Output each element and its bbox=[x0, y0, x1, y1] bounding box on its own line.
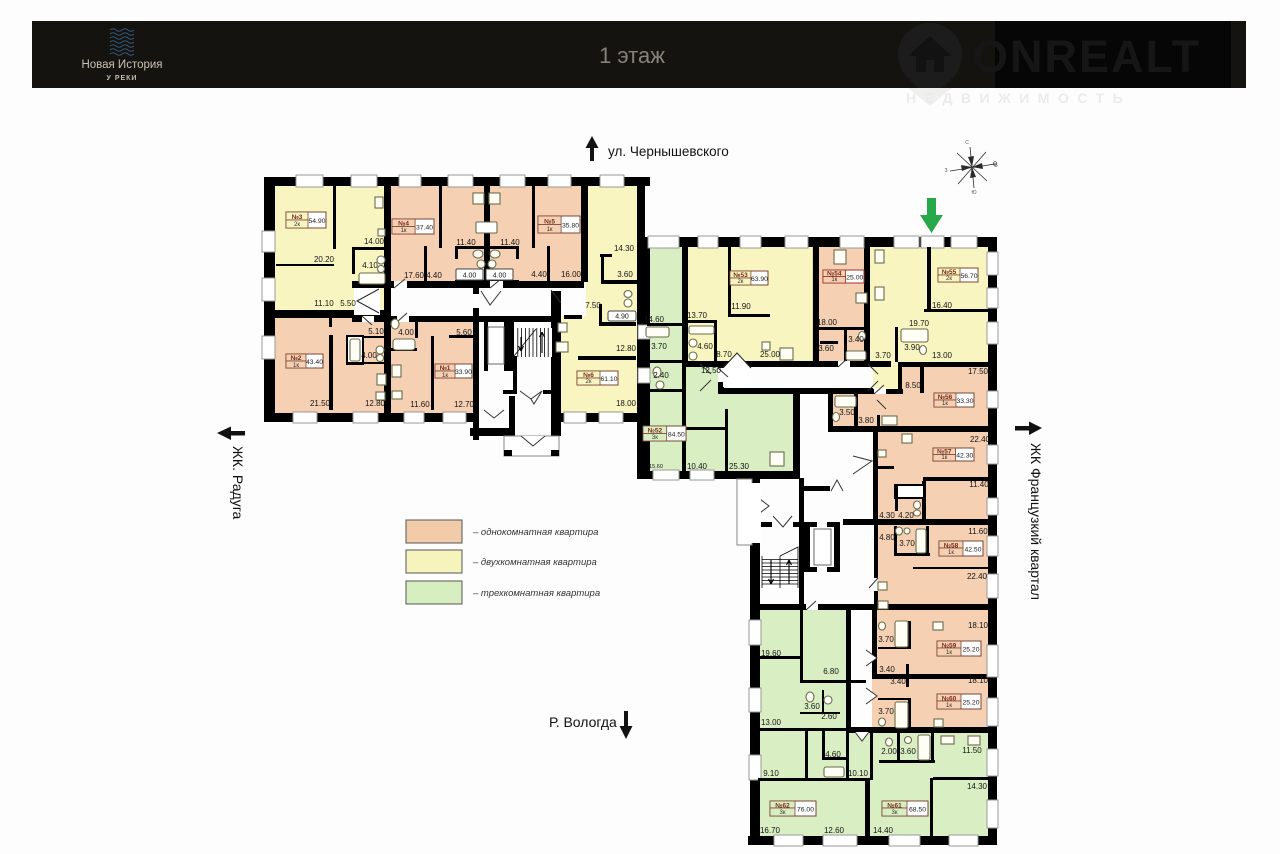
svg-text:3.70: 3.70 bbox=[875, 351, 891, 360]
svg-text:4.00: 4.00 bbox=[463, 273, 477, 280]
svg-text:4.30: 4.30 bbox=[879, 511, 895, 520]
svg-text:12.80: 12.80 bbox=[365, 399, 386, 408]
svg-text:14.60: 14.60 bbox=[644, 315, 665, 324]
svg-text:68.50: 68.50 bbox=[909, 807, 926, 814]
svg-text:56.70: 56.70 bbox=[960, 273, 977, 280]
svg-text:Р. Вологда: Р. Вологда bbox=[549, 714, 617, 730]
svg-text:№62: №62 bbox=[775, 802, 790, 809]
svg-text:5.50: 5.50 bbox=[340, 299, 356, 308]
svg-text:4.20: 4.20 bbox=[898, 511, 914, 520]
svg-text:21.50: 21.50 bbox=[310, 399, 331, 408]
svg-text:3.60: 3.60 bbox=[900, 747, 916, 756]
svg-text:22.40: 22.40 bbox=[970, 435, 991, 444]
svg-text:13.00: 13.00 bbox=[761, 718, 782, 727]
svg-text:4.00: 4.00 bbox=[398, 328, 414, 337]
svg-text:12.60: 12.60 bbox=[824, 826, 845, 835]
svg-text:4.40: 4.40 bbox=[531, 270, 547, 279]
svg-text:1к: 1к bbox=[941, 455, 947, 461]
svg-text:25.20: 25.20 bbox=[962, 700, 979, 707]
svg-text:11.60: 11.60 bbox=[968, 527, 988, 536]
svg-text:3.70: 3.70 bbox=[651, 342, 667, 351]
svg-text:2к: 2к bbox=[294, 222, 300, 228]
svg-text:8.70: 8.70 bbox=[716, 350, 732, 359]
svg-text:№56: №56 bbox=[938, 394, 953, 401]
svg-text:3.50: 3.50 bbox=[839, 408, 855, 417]
svg-text:1к: 1к bbox=[442, 373, 448, 379]
svg-text:16.00: 16.00 bbox=[561, 270, 582, 279]
svg-text:63.90: 63.90 bbox=[751, 276, 768, 283]
svg-text:20.20: 20.20 bbox=[314, 255, 335, 264]
svg-text:13.70: 13.70 bbox=[687, 311, 708, 320]
svg-text:12.80: 12.80 bbox=[616, 344, 637, 353]
svg-text:– трехкомнатная квартира: – трехкомнатная квартира bbox=[472, 588, 600, 599]
svg-text:№3: №3 bbox=[292, 214, 303, 221]
svg-text:Ю: Ю bbox=[971, 190, 976, 196]
svg-text:№55: №55 bbox=[942, 269, 957, 276]
svg-text:16.40: 16.40 bbox=[932, 301, 953, 310]
svg-text:№1: №1 bbox=[440, 365, 451, 372]
svg-text:3к: 3к bbox=[780, 810, 786, 816]
svg-text:З: З bbox=[944, 168, 947, 174]
svg-text:12.70: 12.70 bbox=[454, 400, 475, 409]
svg-text:5.60: 5.60 bbox=[456, 328, 472, 337]
svg-text:17.50: 17.50 bbox=[968, 367, 989, 376]
svg-text:15.60: 15.60 bbox=[649, 464, 663, 470]
svg-text:33.30: 33.30 bbox=[956, 398, 973, 405]
svg-text:37.40: 37.40 bbox=[416, 225, 433, 232]
svg-text:14.30: 14.30 bbox=[967, 782, 988, 791]
svg-text:№5: №5 bbox=[544, 218, 555, 225]
svg-text:№60: №60 bbox=[942, 695, 957, 702]
svg-text:4.40: 4.40 bbox=[426, 271, 442, 280]
svg-text:4.60: 4.60 bbox=[697, 342, 713, 351]
svg-text:11.60: 11.60 bbox=[410, 400, 430, 409]
svg-text:84.50: 84.50 bbox=[668, 432, 685, 439]
svg-text:1к: 1к bbox=[293, 363, 299, 369]
svg-text:76.00: 76.00 bbox=[797, 807, 814, 814]
svg-text:1к: 1к bbox=[946, 650, 952, 656]
svg-text:3.70: 3.70 bbox=[878, 635, 894, 644]
svg-text:3.90: 3.90 bbox=[904, 343, 920, 352]
svg-text:2.00: 2.00 bbox=[881, 747, 897, 756]
svg-text:№6: №6 bbox=[583, 372, 594, 379]
svg-text:25.20: 25.20 bbox=[962, 647, 979, 654]
svg-text:3.40: 3.40 bbox=[879, 665, 895, 674]
svg-text:11.40: 11.40 bbox=[456, 238, 476, 247]
svg-text:4.10: 4.10 bbox=[362, 261, 378, 270]
svg-text:3.40: 3.40 bbox=[890, 677, 906, 686]
svg-text:ONREALT: ONREALT bbox=[973, 31, 1201, 82]
svg-text:C: C bbox=[965, 140, 969, 146]
svg-text:8.50: 8.50 bbox=[905, 381, 921, 390]
svg-text:1к: 1к bbox=[942, 401, 948, 407]
svg-text:13.00: 13.00 bbox=[932, 351, 953, 360]
svg-text:№58: №58 bbox=[944, 542, 959, 549]
svg-text:42.30: 42.30 bbox=[956, 453, 973, 460]
svg-text:61.10: 61.10 bbox=[600, 376, 617, 383]
svg-text:18.10: 18.10 bbox=[968, 621, 989, 630]
svg-text:22.40: 22.40 bbox=[967, 572, 988, 581]
svg-text:1к: 1к bbox=[401, 228, 407, 234]
svg-text:18.00: 18.00 bbox=[817, 318, 838, 327]
svg-text:11.40: 11.40 bbox=[500, 238, 520, 247]
svg-text:3.60: 3.60 bbox=[804, 702, 820, 711]
svg-text:6.80: 6.80 bbox=[823, 667, 839, 676]
svg-text:54.90: 54.90 bbox=[308, 218, 325, 225]
svg-text:1к: 1к bbox=[547, 227, 553, 233]
svg-text:Новая История: Новая История bbox=[81, 59, 162, 71]
svg-text:11.50: 11.50 bbox=[962, 746, 982, 755]
svg-text:11.90: 11.90 bbox=[731, 302, 751, 311]
svg-text:10.40: 10.40 bbox=[687, 462, 708, 471]
svg-text:4.60: 4.60 bbox=[825, 750, 841, 759]
svg-text:1к: 1к bbox=[831, 277, 837, 283]
svg-text:У РЕКИ: У РЕКИ bbox=[107, 75, 138, 82]
svg-text:33.90: 33.90 bbox=[455, 369, 472, 376]
svg-text:18.00: 18.00 bbox=[616, 399, 637, 408]
svg-text:№59: №59 bbox=[942, 642, 957, 649]
svg-text:2.60: 2.60 bbox=[821, 712, 837, 721]
svg-text:2к: 2к bbox=[586, 379, 592, 385]
svg-text:3к: 3к bbox=[892, 810, 898, 816]
svg-text:4.00: 4.00 bbox=[493, 273, 507, 280]
svg-text:НЕДВИЖИМОСТЬ: НЕДВИЖИМОСТЬ bbox=[906, 90, 1131, 106]
svg-text:2к: 2к bbox=[737, 279, 743, 285]
svg-text:ЖК. Радуга: ЖК. Радуга bbox=[230, 446, 246, 519]
svg-text:19.60: 19.60 bbox=[761, 649, 782, 658]
svg-text:3.60: 3.60 bbox=[818, 344, 834, 353]
svg-text:14.00: 14.00 bbox=[364, 237, 385, 246]
svg-text:7.50: 7.50 bbox=[585, 301, 601, 310]
svg-text:5.10: 5.10 bbox=[368, 327, 384, 336]
svg-text:3.40: 3.40 bbox=[848, 335, 864, 344]
svg-text:ЖК Французкий квартал: ЖК Французкий квартал bbox=[1028, 443, 1044, 600]
svg-text:1к: 1к bbox=[948, 550, 954, 556]
svg-text:43.40: 43.40 bbox=[306, 359, 323, 366]
svg-text:25.30: 25.30 bbox=[729, 462, 750, 471]
svg-text:10.10: 10.10 bbox=[848, 769, 869, 778]
svg-text:3к: 3к bbox=[652, 435, 658, 441]
svg-text:16.70: 16.70 bbox=[760, 826, 781, 835]
svg-text:9.10: 9.10 bbox=[763, 769, 779, 778]
svg-text:17.60: 17.60 bbox=[404, 271, 425, 280]
svg-text:ул. Чернышевского: ул. Чернышевского bbox=[608, 144, 729, 159]
svg-text:11.40: 11.40 bbox=[969, 480, 989, 489]
svg-text:42.50: 42.50 bbox=[964, 547, 981, 554]
svg-text:2.40: 2.40 bbox=[653, 371, 669, 380]
svg-text:19.70: 19.70 bbox=[909, 319, 930, 328]
svg-text:№4: №4 bbox=[398, 220, 409, 227]
svg-text:3.60: 3.60 bbox=[617, 270, 633, 279]
svg-text:2к: 2к bbox=[946, 276, 952, 282]
svg-text:– двухкомнатная квартира: – двухкомнатная квартира bbox=[472, 557, 597, 568]
svg-text:12.50: 12.50 bbox=[701, 366, 722, 375]
svg-text:3.70: 3.70 bbox=[899, 539, 915, 548]
svg-text:4.80: 4.80 bbox=[879, 533, 895, 542]
svg-text:14.30: 14.30 bbox=[614, 244, 635, 253]
svg-text:№53: №53 bbox=[733, 272, 748, 279]
svg-text:4.00: 4.00 bbox=[361, 351, 377, 360]
svg-text:1 этаж: 1 этаж bbox=[599, 43, 665, 68]
svg-text:№61: №61 bbox=[887, 802, 902, 809]
svg-text:14.40: 14.40 bbox=[873, 826, 894, 835]
svg-text:25.00: 25.00 bbox=[846, 275, 863, 282]
svg-text:№2: №2 bbox=[291, 355, 302, 362]
svg-text:– однокомнатная квартира: – однокомнатная квартира bbox=[472, 527, 598, 538]
svg-text:35.80: 35.80 bbox=[562, 223, 579, 230]
svg-text:3.80: 3.80 bbox=[858, 416, 874, 425]
svg-text:4.90: 4.90 bbox=[615, 314, 629, 321]
svg-text:25.00: 25.00 bbox=[760, 350, 781, 359]
svg-text:11.10: 11.10 bbox=[314, 299, 334, 308]
svg-text:3.70: 3.70 bbox=[878, 707, 894, 716]
svg-text:18.10: 18.10 bbox=[968, 676, 989, 685]
svg-text:1к: 1к bbox=[946, 703, 952, 709]
svg-text:№52: №52 bbox=[648, 427, 663, 434]
